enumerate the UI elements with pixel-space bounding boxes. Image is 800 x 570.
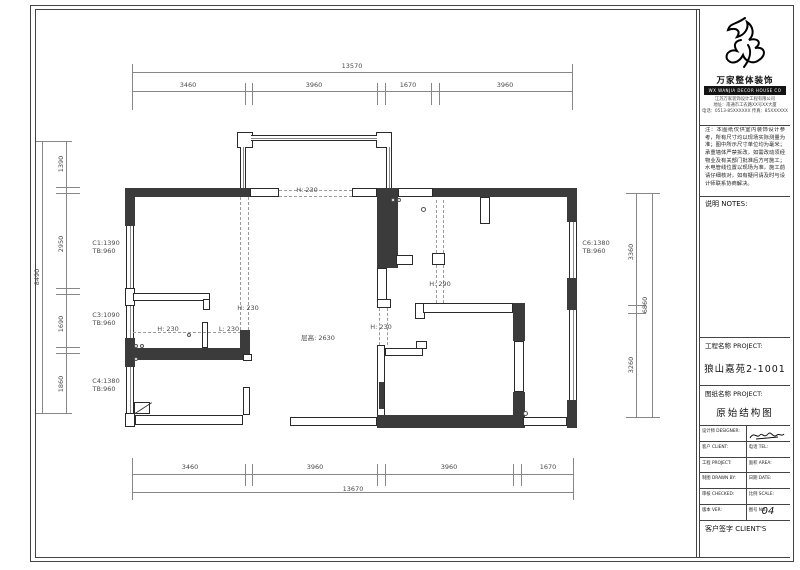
floor-plan: 1357034603960167039603460396039601670136… bbox=[0, 0, 800, 570]
plan-label: L: 230 bbox=[219, 325, 239, 333]
dim-line bbox=[132, 72, 573, 73]
plan-label: C4:1380 bbox=[92, 377, 119, 385]
title-table-cell: 客户 CLIENT: bbox=[700, 442, 747, 457]
plan-label: C1:1390 bbox=[92, 239, 119, 247]
wall-thin bbox=[250, 188, 279, 197]
title-table-cell: 面积 AREA: bbox=[747, 458, 790, 473]
wall-solid bbox=[377, 415, 523, 428]
dim-line bbox=[572, 64, 573, 110]
plan-label: H: 230 bbox=[370, 323, 392, 331]
wall-solid bbox=[133, 348, 250, 360]
dim-line bbox=[56, 288, 80, 289]
dim-line bbox=[56, 187, 80, 188]
plan-label: 1690 bbox=[57, 316, 65, 333]
title-table-cell: 制图 DRAWN BY: bbox=[700, 473, 747, 488]
dash-beam-line bbox=[443, 200, 444, 253]
notes-label: 说明 NOTES: bbox=[705, 199, 747, 209]
company-address-line: 电话：0513-85XXXXXX 传真：85XXXXXX bbox=[702, 109, 788, 115]
plan-label: C6:1380 bbox=[582, 239, 609, 247]
brand-name: 万家整体装饰 bbox=[700, 74, 790, 86]
wall-thin bbox=[523, 417, 567, 426]
pipe-circle bbox=[187, 333, 191, 337]
dim-line bbox=[626, 193, 660, 194]
window bbox=[386, 147, 392, 189]
window bbox=[240, 147, 246, 189]
plan-label: TB:960 bbox=[92, 385, 115, 393]
divider bbox=[700, 337, 790, 338]
title-table-cell: 版本 VER: bbox=[700, 505, 747, 521]
pipe-circle bbox=[134, 344, 138, 348]
wall-thin bbox=[423, 303, 513, 313]
plan-label: 2950 bbox=[57, 236, 65, 253]
plan-label: C3:1090 bbox=[92, 311, 119, 319]
plan-label: 3960 bbox=[497, 81, 514, 89]
window bbox=[126, 306, 134, 338]
project-name-value: 狼山嘉苑2-1001 bbox=[700, 361, 790, 375]
plan-label: 层高: 2630 bbox=[301, 332, 335, 342]
dim-line bbox=[385, 83, 386, 105]
plan-label: 3960 bbox=[306, 81, 323, 89]
dim-line bbox=[377, 464, 378, 486]
dim-line bbox=[252, 83, 253, 105]
wall-solid bbox=[240, 330, 250, 350]
plan-label: 3460 bbox=[180, 81, 197, 89]
dim-line bbox=[385, 464, 386, 486]
plan-label: TB:960 bbox=[92, 319, 115, 327]
title-table-row: 客户 CLIENT:电话 TEL: bbox=[700, 442, 790, 458]
drawing-name-label: 图纸名称 PROJECT: bbox=[705, 388, 763, 398]
plan-label: 1670 bbox=[400, 81, 417, 89]
dim-line bbox=[56, 193, 80, 194]
wall-thin bbox=[376, 132, 392, 148]
dim-line bbox=[56, 294, 80, 295]
plan-label: 8490 bbox=[33, 269, 41, 286]
dim-line bbox=[132, 458, 133, 500]
wall-thin bbox=[135, 415, 243, 425]
divider bbox=[700, 385, 790, 386]
brand-banner: WX WANJIA DECOR HOUSE CO bbox=[704, 86, 786, 95]
pipe-circle bbox=[134, 357, 138, 361]
wall-thin bbox=[377, 299, 391, 308]
plan-label: H: 230 bbox=[237, 304, 259, 312]
dim-line bbox=[252, 464, 253, 486]
wall-thin bbox=[396, 255, 413, 265]
wall-thin bbox=[133, 293, 210, 301]
client-signature-label: 客户签字 CLIENT'S bbox=[705, 524, 766, 534]
dim-line bbox=[521, 464, 522, 486]
divider bbox=[700, 196, 790, 197]
wall-thin bbox=[398, 188, 433, 197]
dim-line bbox=[652, 193, 653, 418]
wall-solid bbox=[513, 303, 525, 341]
plan-label: TB:960 bbox=[582, 247, 605, 255]
dim-line bbox=[513, 464, 514, 486]
plan-label: 13670 bbox=[343, 485, 364, 493]
divider bbox=[700, 125, 790, 126]
dim-line bbox=[439, 83, 440, 105]
window bbox=[126, 226, 134, 288]
title-table-cell: 审核 CHECKED: bbox=[700, 489, 747, 504]
sheet-number: 04 bbox=[750, 506, 786, 517]
plan-label: 1390 bbox=[57, 156, 65, 173]
drawing-name-value: 原始结构图 bbox=[700, 405, 790, 419]
project-name-label: 工程名称 PROJECT: bbox=[705, 340, 763, 350]
company-address: 江苏万家装饰设计工程有限公司 地址：南通市工农路XX号XX大厦 电话：0513-… bbox=[702, 97, 788, 114]
plan-label: 13570 bbox=[342, 62, 363, 70]
wall-solid bbox=[125, 188, 250, 197]
dim-line bbox=[66, 141, 67, 414]
wall-solid bbox=[567, 278, 577, 310]
dim-line bbox=[42, 141, 43, 414]
pipe-circle bbox=[140, 344, 144, 348]
drawing-sheet: 1357034603960167039603460396039601670136… bbox=[0, 0, 800, 570]
title-table-cell: 比例 SCALE: bbox=[747, 489, 790, 504]
wall-solid bbox=[379, 382, 384, 409]
dim-line bbox=[132, 64, 133, 110]
window bbox=[569, 222, 577, 278]
dim-line bbox=[245, 464, 246, 486]
wall-thin bbox=[290, 417, 377, 426]
pipe-circle bbox=[523, 411, 528, 416]
wall-thin bbox=[432, 253, 445, 265]
company-logo-icon bbox=[700, 13, 790, 75]
dim-line bbox=[56, 353, 80, 354]
designer-signature bbox=[748, 427, 786, 443]
dash-beam-line bbox=[279, 196, 352, 197]
title-table-cell: 电话 TEL: bbox=[747, 442, 790, 457]
plan-label: 3960 bbox=[307, 463, 324, 471]
window bbox=[126, 367, 134, 413]
dim-line bbox=[132, 474, 574, 475]
plan-label: 3260 bbox=[627, 357, 635, 374]
plan-label: H: 230 bbox=[296, 186, 318, 194]
plan-label: 1670 bbox=[540, 463, 557, 471]
wall-thin bbox=[125, 413, 135, 427]
plan-label: 6860 bbox=[641, 297, 649, 314]
dash-beam-line bbox=[436, 200, 437, 253]
title-table-row: 审核 CHECKED:比例 SCALE: bbox=[700, 489, 790, 505]
dim-line bbox=[626, 417, 660, 418]
dim-line bbox=[573, 458, 574, 500]
title-table-cell: 工程 PROJECT: bbox=[700, 458, 747, 473]
pipe-circle bbox=[397, 198, 401, 202]
wall-solid bbox=[567, 197, 577, 222]
notes-paragraph: 注：本图纸仅供室内装饰设计参考，所有尺寸均以现场实际测量为准；图中所示尺寸单位均… bbox=[705, 127, 785, 193]
title-table-cell: 设计师 DESIGNER: bbox=[700, 426, 747, 441]
wall-solid bbox=[125, 197, 135, 226]
wall-thin bbox=[243, 354, 252, 361]
window bbox=[569, 310, 577, 400]
wall-thin bbox=[203, 299, 210, 310]
wall-thin bbox=[352, 188, 377, 197]
title-table-row: 工程 PROJECT:面积 AREA: bbox=[700, 458, 790, 474]
dim-line bbox=[377, 83, 378, 105]
divider bbox=[700, 520, 790, 521]
wall-solid bbox=[433, 188, 577, 197]
wall-thin bbox=[514, 341, 524, 392]
plan-label: 3360 bbox=[627, 244, 635, 261]
plan-label: H: 290 bbox=[429, 280, 451, 288]
window bbox=[251, 135, 377, 141]
wall-thin bbox=[480, 197, 490, 224]
wall-thin bbox=[202, 322, 208, 348]
dim-line bbox=[245, 83, 246, 105]
title-table-row: 制图 DRAWN BY:日期 DATE: bbox=[700, 473, 790, 489]
plan-label: 3960 bbox=[441, 463, 458, 471]
dim-line bbox=[431, 83, 432, 105]
plan-label: TB:960 bbox=[92, 247, 115, 255]
pipe-circle bbox=[421, 207, 426, 212]
dim-line bbox=[56, 347, 80, 348]
plan-label: H: 230 bbox=[157, 325, 179, 333]
wall-thin bbox=[243, 387, 250, 415]
dim-line bbox=[132, 91, 573, 92]
pipe-circle bbox=[391, 198, 395, 202]
plan-label: 3460 bbox=[182, 463, 199, 471]
wall-thin bbox=[385, 348, 423, 356]
wall-solid bbox=[567, 400, 577, 428]
plan-label: 1860 bbox=[57, 376, 65, 393]
wall-thin bbox=[377, 268, 387, 301]
company-address-line: 地址：南通市工农路XX号XX大厦 bbox=[702, 103, 788, 109]
title-table-cell: 日期 DATE: bbox=[747, 473, 790, 488]
wall-thin bbox=[416, 341, 427, 349]
title-block: 万家整体装饰 WX WANJIA DECOR HOUSE CO 江苏万家装饰设计… bbox=[699, 9, 790, 557]
